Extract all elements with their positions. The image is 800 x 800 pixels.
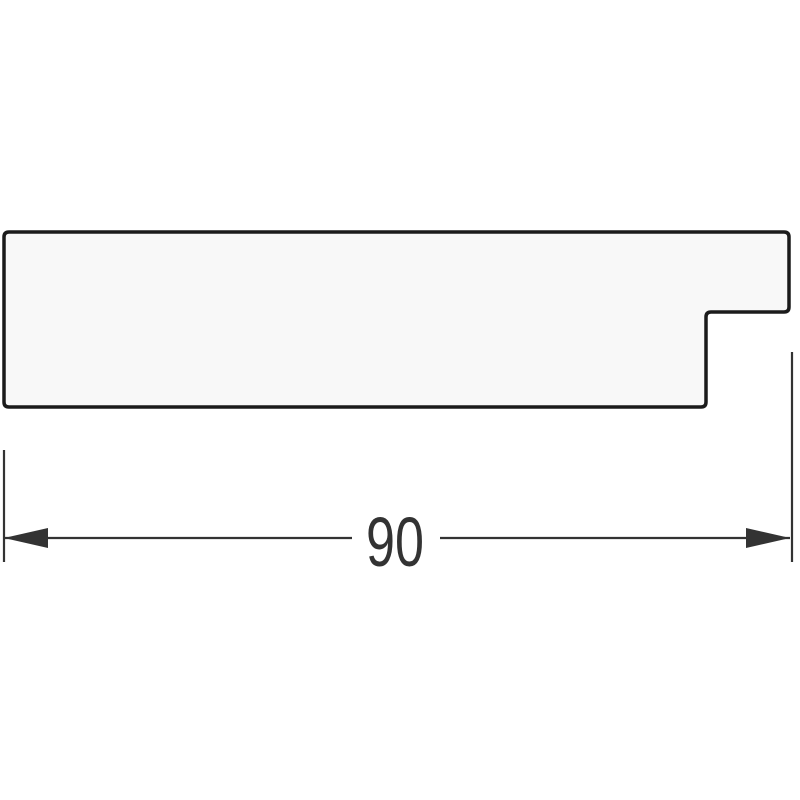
arrowhead-left-icon — [4, 528, 48, 548]
arrowhead-right-icon — [746, 528, 790, 548]
moulding-profile-outline — [4, 232, 789, 407]
technical-drawing-canvas: 90 — [0, 0, 800, 800]
dimension-value-label: 90 — [366, 503, 424, 581]
moulding-profile-drawing: 90 — [0, 0, 800, 800]
